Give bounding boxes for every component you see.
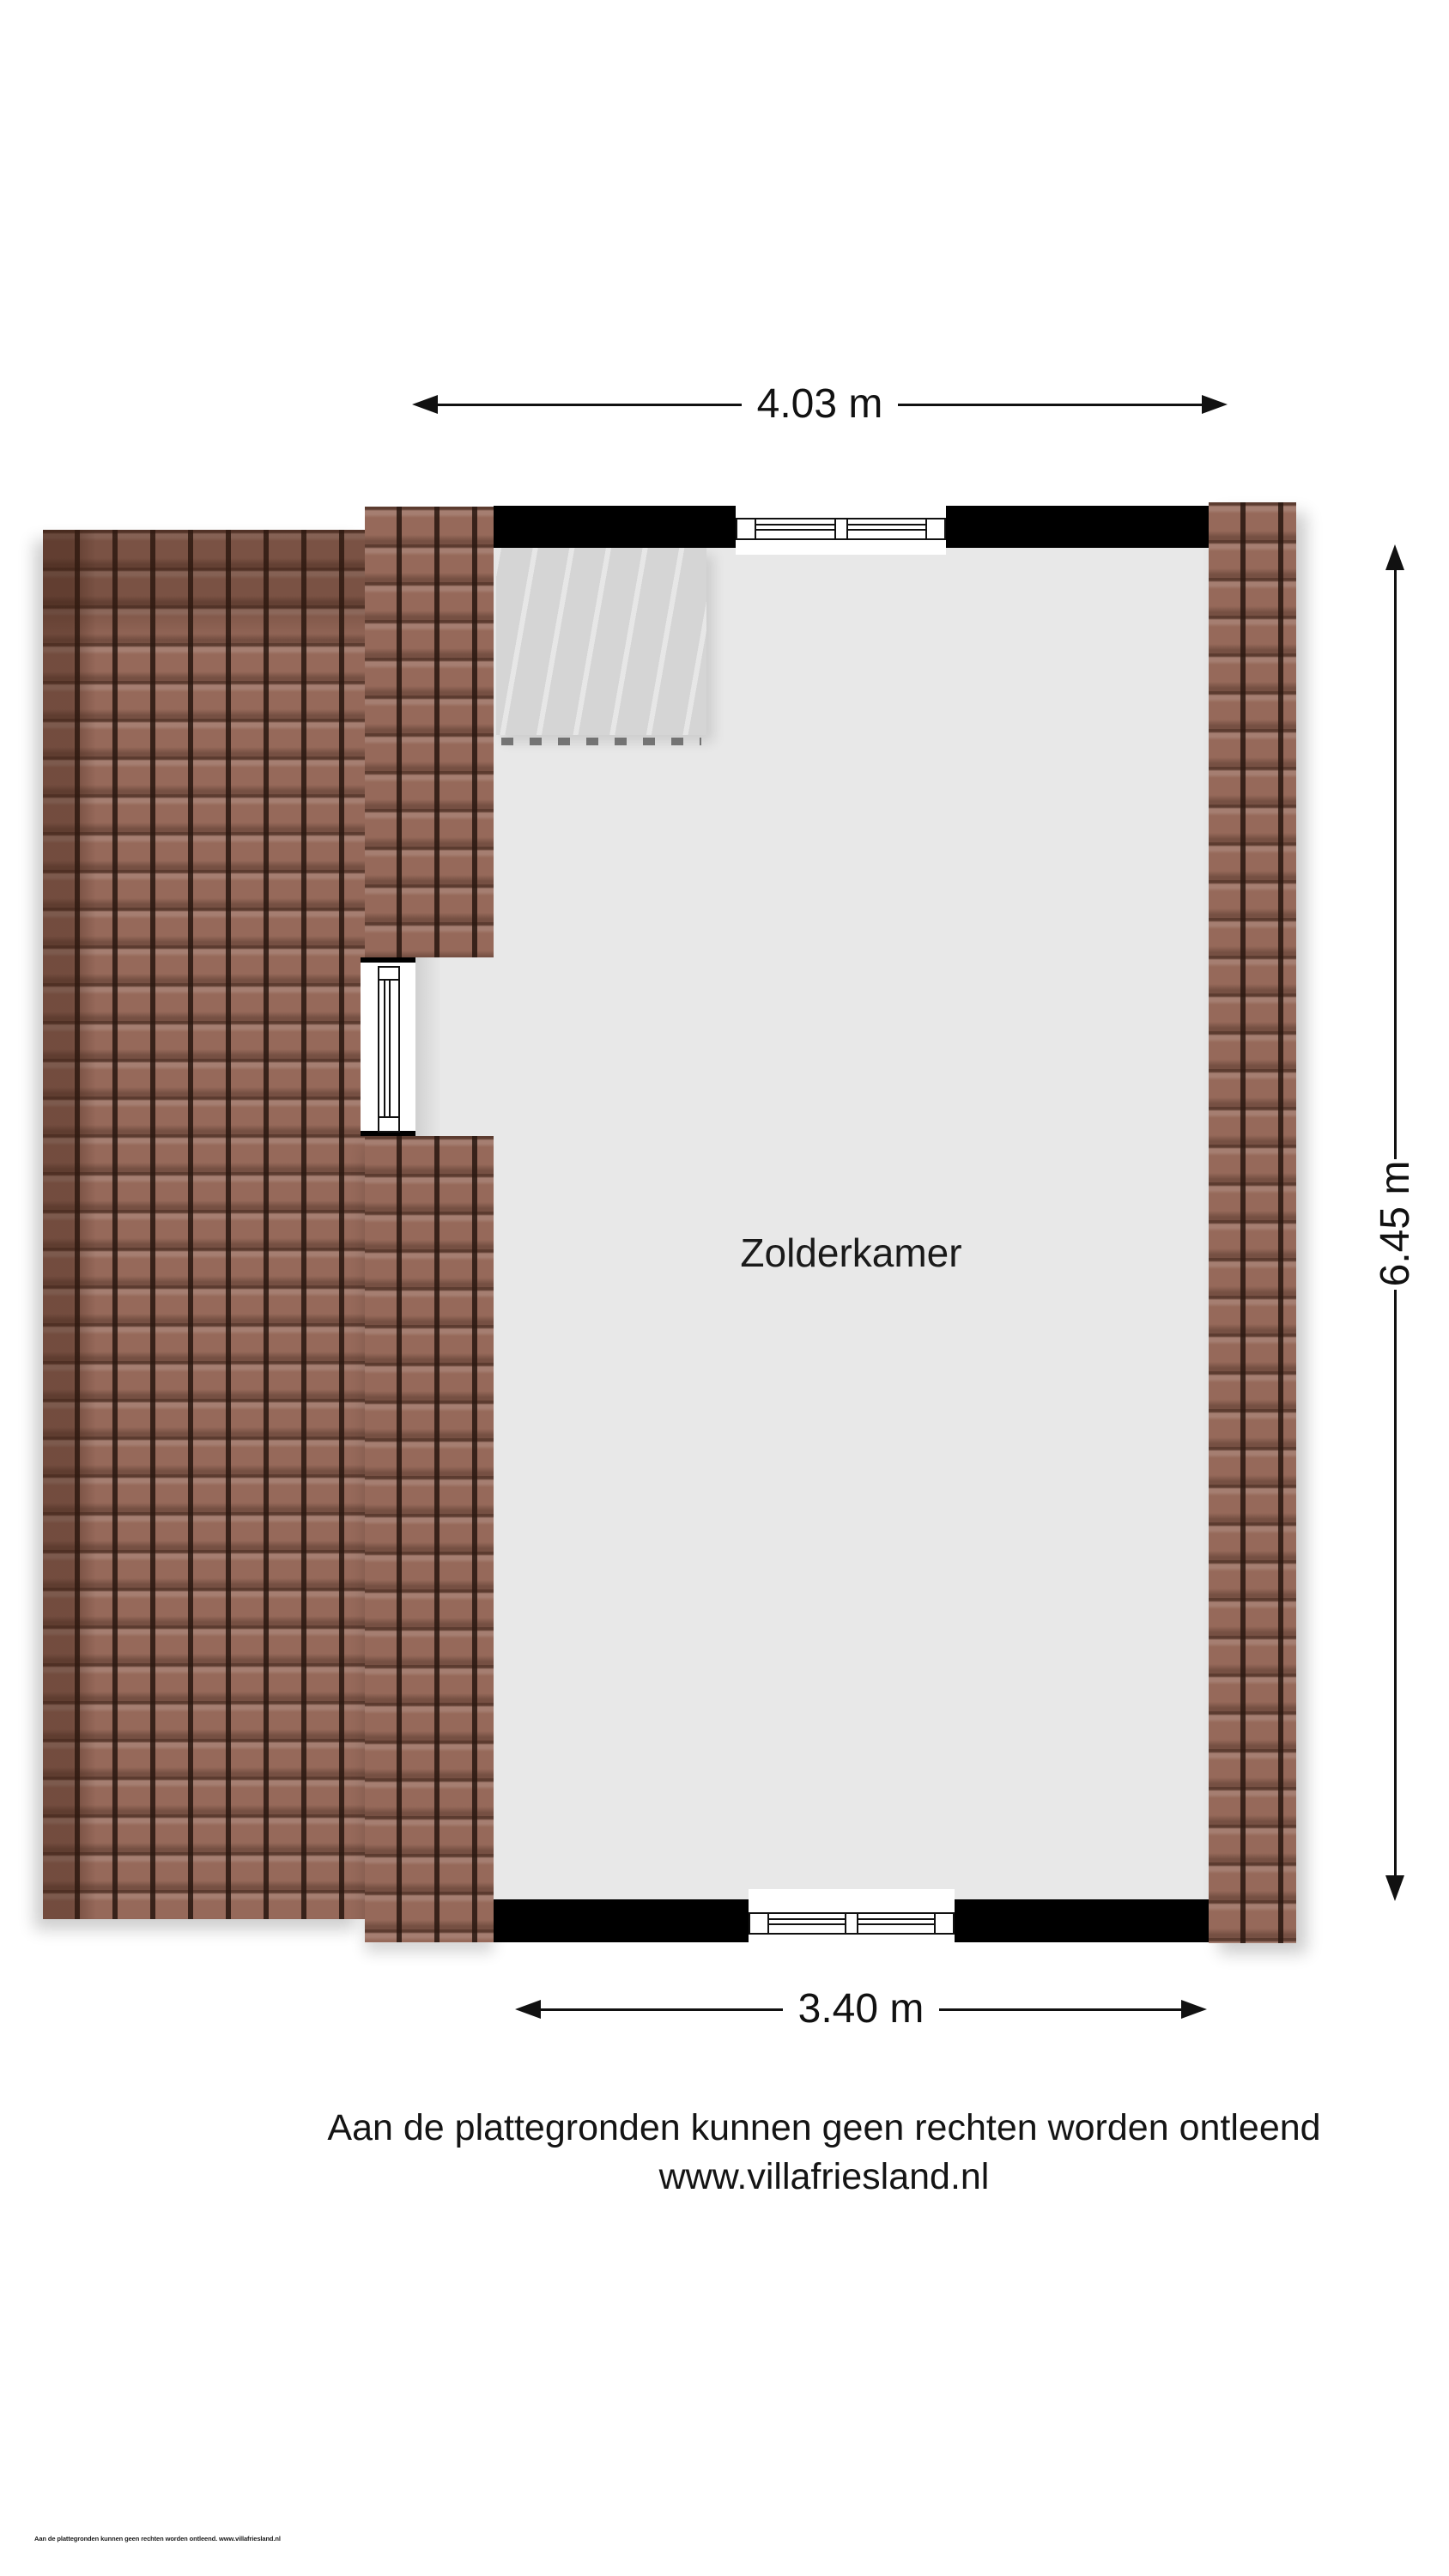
dimension-line (1394, 1290, 1397, 1880)
left-roof-panel (43, 530, 365, 1919)
dimension-arrow-left-icon (515, 2000, 541, 2019)
window-top (736, 496, 946, 555)
window-pane-right (858, 1914, 934, 1933)
window-mullion (845, 1914, 858, 1933)
dimension-arrow-right-icon (1181, 2000, 1207, 2019)
window-pane-right (848, 519, 926, 538)
window-pane-left (756, 519, 834, 538)
dimension-line (1394, 568, 1397, 1159)
stair-treads (501, 738, 701, 745)
disclaimer-line2: www.villafriesland.nl (137, 2153, 1449, 2202)
roof-strip-left-upper (365, 507, 494, 957)
attic-room-floor (494, 548, 1209, 1899)
roof-ridge-shading (43, 530, 365, 1919)
window-pane-left (769, 1914, 845, 1933)
room-label: Zolderkamer (494, 1230, 1209, 1276)
small-print: Aan de plattegronden kunnen geen rechten… (34, 2535, 281, 2543)
roof-strip-left-lower (365, 1136, 494, 1942)
dimension-bottom: 3.40 m (515, 1986, 1207, 2032)
disclaimer-line1: Aan de plattegronden kunnen geen rechten… (137, 2104, 1449, 2153)
window-frame (736, 518, 946, 540)
dormer-floor-patch (415, 957, 494, 1136)
stairs (496, 548, 706, 735)
dormer-lintel-top (361, 957, 415, 963)
dimension-right-label: 6.45 m (1375, 1161, 1416, 1287)
dimension-arrow-down-icon (1385, 1875, 1404, 1901)
dimension-bottom-label: 3.40 m (798, 1989, 925, 2030)
disclaimer: Aan de plattegronden kunnen geen rechten… (137, 2104, 1449, 2202)
window-frame (749, 1912, 955, 1935)
window-cap-top (379, 968, 398, 981)
roof-strip-right (1209, 502, 1296, 1943)
window-cap-bottom (379, 1116, 398, 1131)
dormer-window (378, 966, 400, 1133)
window-cap-right (934, 1914, 953, 1933)
dormer-recess (361, 957, 415, 1136)
window-cap-right (925, 519, 944, 538)
window-pane (379, 981, 398, 1116)
dimension-line (541, 2008, 783, 2011)
dimension-arrow-up-icon (1385, 544, 1404, 570)
window-cap-left (737, 519, 756, 538)
window-mullion (834, 519, 848, 538)
window-cap-left (750, 1914, 769, 1933)
dimension-line (939, 2008, 1181, 2011)
window-bottom (749, 1889, 955, 1946)
